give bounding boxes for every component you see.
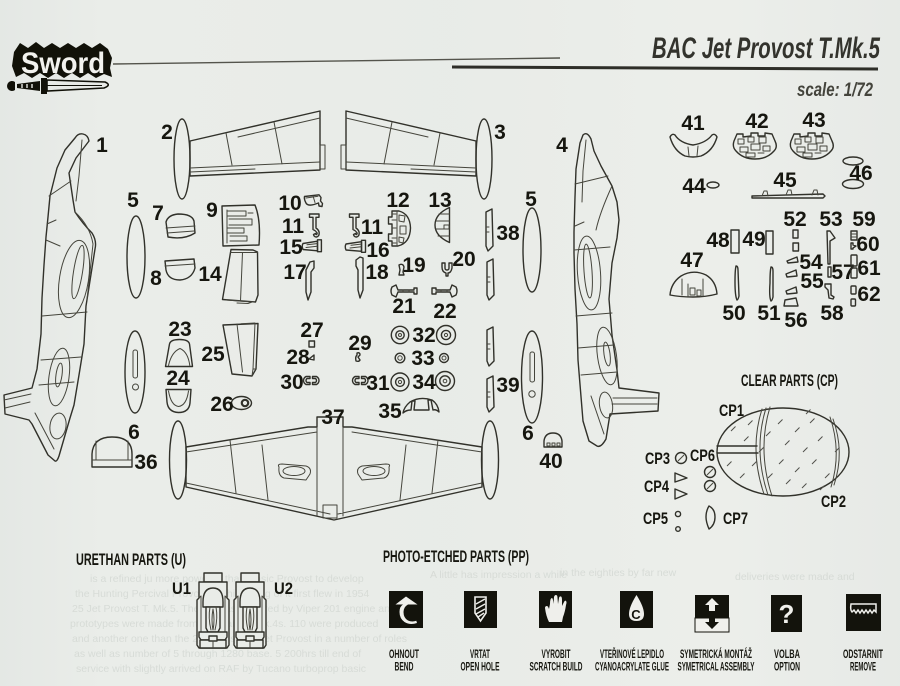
svg-text:U2: U2 [274, 580, 293, 598]
svg-text:CYANOACRYLATE GLUE: CYANOACRYLATE GLUE [595, 660, 669, 674]
svg-text:61: 61 [857, 257, 881, 280]
svg-text:28: 28 [286, 346, 310, 369]
svg-text:62: 62 [857, 283, 880, 306]
svg-text:U1: U1 [172, 580, 191, 598]
svg-text:30: 30 [280, 371, 303, 394]
svg-text:33: 33 [411, 347, 434, 370]
svg-text:24: 24 [166, 367, 190, 390]
svg-text:45: 45 [773, 169, 797, 192]
svg-text:as well as number of 5 through: as well as number of 5 through 1280 base… [74, 648, 361, 660]
svg-text:15: 15 [279, 236, 303, 259]
svg-text:2: 2 [161, 121, 173, 144]
svg-text:23: 23 [168, 318, 191, 341]
svg-text:32: 32 [412, 324, 435, 347]
svg-text:11: 11 [361, 216, 384, 239]
svg-text:56: 56 [784, 309, 807, 332]
svg-text:51: 51 [757, 302, 781, 325]
svg-text:5: 5 [127, 189, 139, 212]
svg-text:17: 17 [283, 261, 306, 284]
svg-text:27: 27 [300, 319, 323, 342]
svg-text:scale: 1/72: scale: 1/72 [797, 80, 873, 101]
svg-text:18: 18 [365, 261, 389, 284]
svg-text:CP3: CP3 [645, 450, 670, 468]
svg-text:A little has impression a whil: A little has impression a while [430, 569, 567, 581]
svg-text:CP4: CP4 [644, 478, 670, 496]
svg-text:55: 55 [800, 270, 824, 293]
svg-text:26: 26 [210, 393, 233, 416]
svg-text:34: 34 [412, 371, 436, 394]
svg-text:PHOTO-ETCHED PARTS (PP): PHOTO-ETCHED PARTS (PP) [383, 548, 529, 566]
svg-text:21: 21 [392, 295, 416, 318]
svg-text:11: 11 [282, 215, 305, 238]
svg-text:6: 6 [522, 422, 534, 445]
svg-text:31: 31 [366, 372, 390, 395]
svg-text:44: 44 [682, 175, 706, 198]
svg-text:CP6: CP6 [690, 447, 715, 465]
svg-text:service with slightly arrived: service with slightly arrived on RAF by … [76, 663, 366, 675]
svg-text:REMOVE: REMOVE [850, 660, 876, 674]
svg-text:48: 48 [706, 229, 730, 252]
svg-text:58: 58 [820, 302, 844, 325]
svg-text:39: 39 [496, 374, 519, 397]
svg-text:in the eighties by far new: in the eighties by far new [560, 567, 677, 579]
svg-text:3: 3 [494, 121, 506, 144]
svg-text:OPTION: OPTION [774, 660, 800, 674]
svg-text:41: 41 [681, 112, 705, 135]
svg-text:49: 49 [742, 228, 765, 251]
svg-text:35: 35 [378, 400, 402, 423]
svg-text:Sword: Sword [21, 47, 105, 80]
svg-text:CLEAR PARTS (CP): CLEAR PARTS (CP) [741, 372, 838, 390]
svg-text:9: 9 [206, 199, 218, 222]
svg-text:47: 47 [680, 249, 703, 272]
svg-text:7: 7 [152, 202, 164, 225]
svg-text:BAC Jet Provost T.Mk.5: BAC Jet Provost T.Mk.5 [652, 32, 881, 65]
svg-text:CP7: CP7 [723, 510, 748, 528]
svg-text:12: 12 [386, 189, 409, 212]
svg-text:6: 6 [128, 421, 140, 444]
svg-text:29: 29 [348, 332, 371, 355]
svg-text:52: 52 [783, 208, 806, 231]
svg-text:SYMETRICAL ASSEMBLY: SYMETRICAL ASSEMBLY [678, 660, 755, 674]
svg-text:20: 20 [452, 248, 475, 271]
svg-text:25: 25 [201, 343, 225, 366]
svg-text:53: 53 [819, 208, 842, 231]
svg-text:50: 50 [722, 302, 745, 325]
svg-text:URETHAN PARTS (U): URETHAN PARTS (U) [76, 551, 186, 569]
svg-text:10: 10 [278, 192, 301, 215]
svg-text:8: 8 [150, 267, 162, 290]
svg-text:OPEN HOLE: OPEN HOLE [461, 660, 500, 674]
svg-text:deliveries were made and: deliveries were made and [735, 571, 855, 583]
svg-text:19: 19 [402, 254, 425, 277]
svg-text:38: 38 [496, 222, 520, 245]
svg-text:36: 36 [134, 451, 157, 474]
svg-text:13: 13 [428, 189, 451, 212]
svg-text:5: 5 [525, 188, 537, 211]
svg-text:C: C [631, 607, 641, 622]
svg-text:40: 40 [539, 450, 562, 473]
svg-text:14: 14 [198, 263, 222, 286]
svg-text:BEND: BEND [395, 660, 414, 674]
svg-text:37: 37 [321, 406, 344, 429]
svg-text:4: 4 [556, 134, 568, 157]
svg-text:46: 46 [849, 162, 872, 185]
svg-text:CP2: CP2 [821, 493, 846, 511]
svg-text:59: 59 [852, 208, 875, 231]
svg-text:16: 16 [366, 239, 389, 262]
svg-text:CP5: CP5 [643, 510, 668, 528]
svg-text:CP1: CP1 [719, 402, 744, 420]
svg-text:42: 42 [745, 110, 768, 133]
svg-text:SCRATCH BUILD: SCRATCH BUILD [530, 660, 583, 674]
svg-text:1: 1 [96, 134, 108, 157]
svg-text:43: 43 [802, 109, 825, 132]
svg-text:22: 22 [433, 300, 456, 323]
svg-text:60: 60 [856, 233, 879, 256]
svg-text:?: ? [779, 599, 795, 629]
